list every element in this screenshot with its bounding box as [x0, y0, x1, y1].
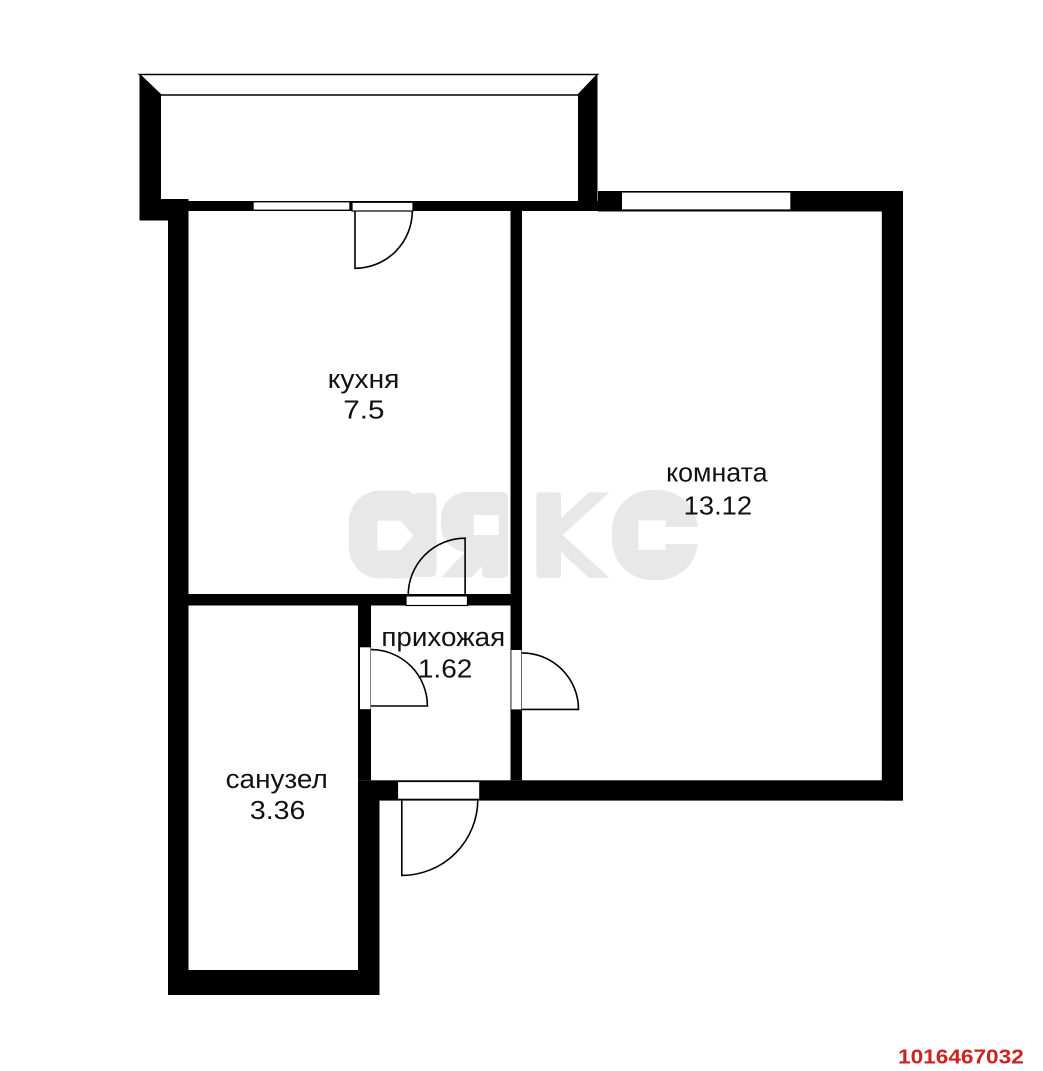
svg-text:комната: комната: [666, 460, 768, 488]
svg-text:санузел: санузел: [226, 766, 328, 794]
svg-text:3.36: 3.36: [250, 797, 306, 825]
svg-text:7.5: 7.5: [343, 396, 384, 424]
svg-text:1.62: 1.62: [418, 655, 472, 683]
svg-text:13.12: 13.12: [684, 492, 752, 520]
svg-text:прихожая: прихожая: [381, 624, 505, 652]
svg-text:кухня: кухня: [328, 366, 400, 394]
svg-text:1016467032: 1016467032: [898, 1045, 1024, 1068]
